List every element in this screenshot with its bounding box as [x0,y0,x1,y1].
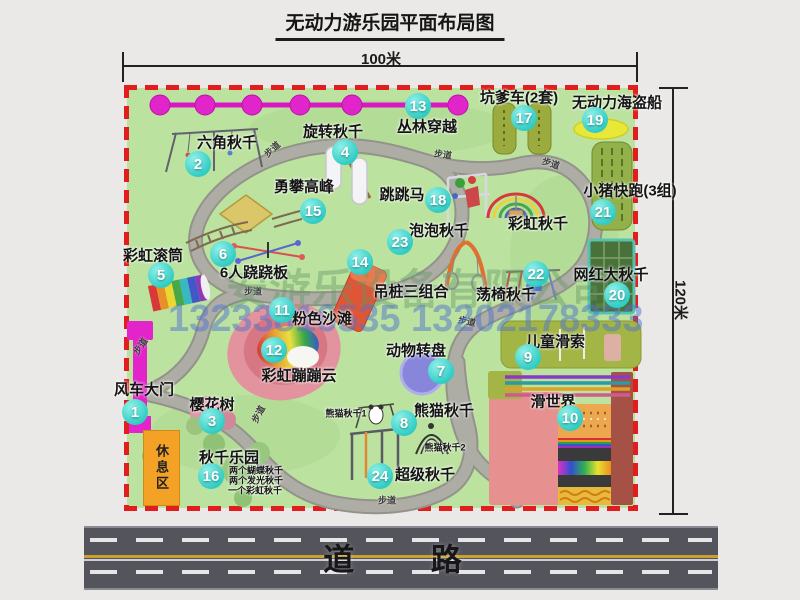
poi-badge-3: 3 [199,408,225,434]
poi-badge-10: 10 [557,405,583,431]
poi-label-panda-swing: 熊猫秋千 [414,400,474,421]
poi-badge-16: 16 [198,463,224,489]
walkway-label: 步道 [433,146,453,161]
poi-label-bubble-swing: 泡泡秋千 [409,220,469,241]
poi-label-piggy-run: 小猪快跑(3组) [583,180,676,201]
poi-badge-5: 5 [148,262,174,288]
poi-badge-24: 24 [367,463,393,489]
poi-badge-13: 13 [405,93,431,119]
poi-label-rotating-swing: 旋转秋千 [303,121,363,142]
height-dimension-label: 120米 [671,280,692,320]
poi-badge-23: 23 [387,229,413,255]
poi-note-swing-park-3: 一个彩虹秋千 [228,484,282,497]
poi-label-panda-swing-2: 熊猫秋千2 [424,441,465,454]
poi-badge-19: 19 [582,107,608,133]
poi-label-hanging-pile: 吊桩三组合 [373,281,448,302]
page-title: 无动力游乐园平面布局图 [275,8,504,41]
poi-badge-11: 11 [269,297,295,323]
poi-label-net-swing: 网红大秋千 [573,264,648,285]
poi-badge-8: 8 [391,410,417,436]
poi-badge-4: 4 [332,139,358,165]
poi-label-rainbow-cloud: 彩虹蹦蹦云 [261,365,336,386]
poi-badge-2: 2 [185,151,211,177]
poi-label-rainbow-roller: 彩虹滚筒 [123,245,183,266]
poi-label-super-swing: 超级秋千 [395,464,455,485]
poi-badge-18: 18 [425,187,451,213]
poi-badge-9: 9 [515,344,541,370]
poi-badge-14: 14 [347,249,373,275]
walkway-label: 步道 [378,494,396,507]
poi-badge-17: 17 [511,105,537,131]
poi-label-rainbow-swing: 彩虹秋千 [508,213,568,234]
poi-label-swing-chair: 荡椅秋千 [476,284,536,305]
poi-badge-1: 1 [122,399,148,425]
poi-label-windmill-gate: 风车大门 [114,379,174,400]
poi-badge-12: 12 [261,337,287,363]
rest-area: 休息区 [143,430,180,506]
park-layout-map: 无动力游乐园平面布局图 100米 120米 [0,0,800,600]
poi-badge-21: 21 [590,199,616,225]
poi-badge-7: 7 [428,358,454,384]
poi-label-panda-swing-1: 熊猫秋千1 [325,407,366,420]
poi-label-jungle-crossing: 丛林穿越 [397,116,457,137]
poi-label-hexagon-swing: 六角秋千 [197,132,257,153]
poi-badge-6: 6 [210,241,236,267]
poi-badge-15: 15 [300,198,326,224]
width-dimension-label: 100米 [361,48,401,69]
poi-label-jumping-horse: 跳跳马 [379,184,424,205]
poi-label-climbing-peak: 勇攀高峰 [274,176,334,197]
poi-label-pink-beach: 粉色沙滩 [292,308,352,329]
poi-badge-22: 22 [523,261,549,287]
poi-label-animal-carousel: 动物转盘 [386,340,446,361]
poi-label-pit-cart: 坑爹车(2套) [480,87,558,108]
poi-badge-20: 20 [604,282,630,308]
